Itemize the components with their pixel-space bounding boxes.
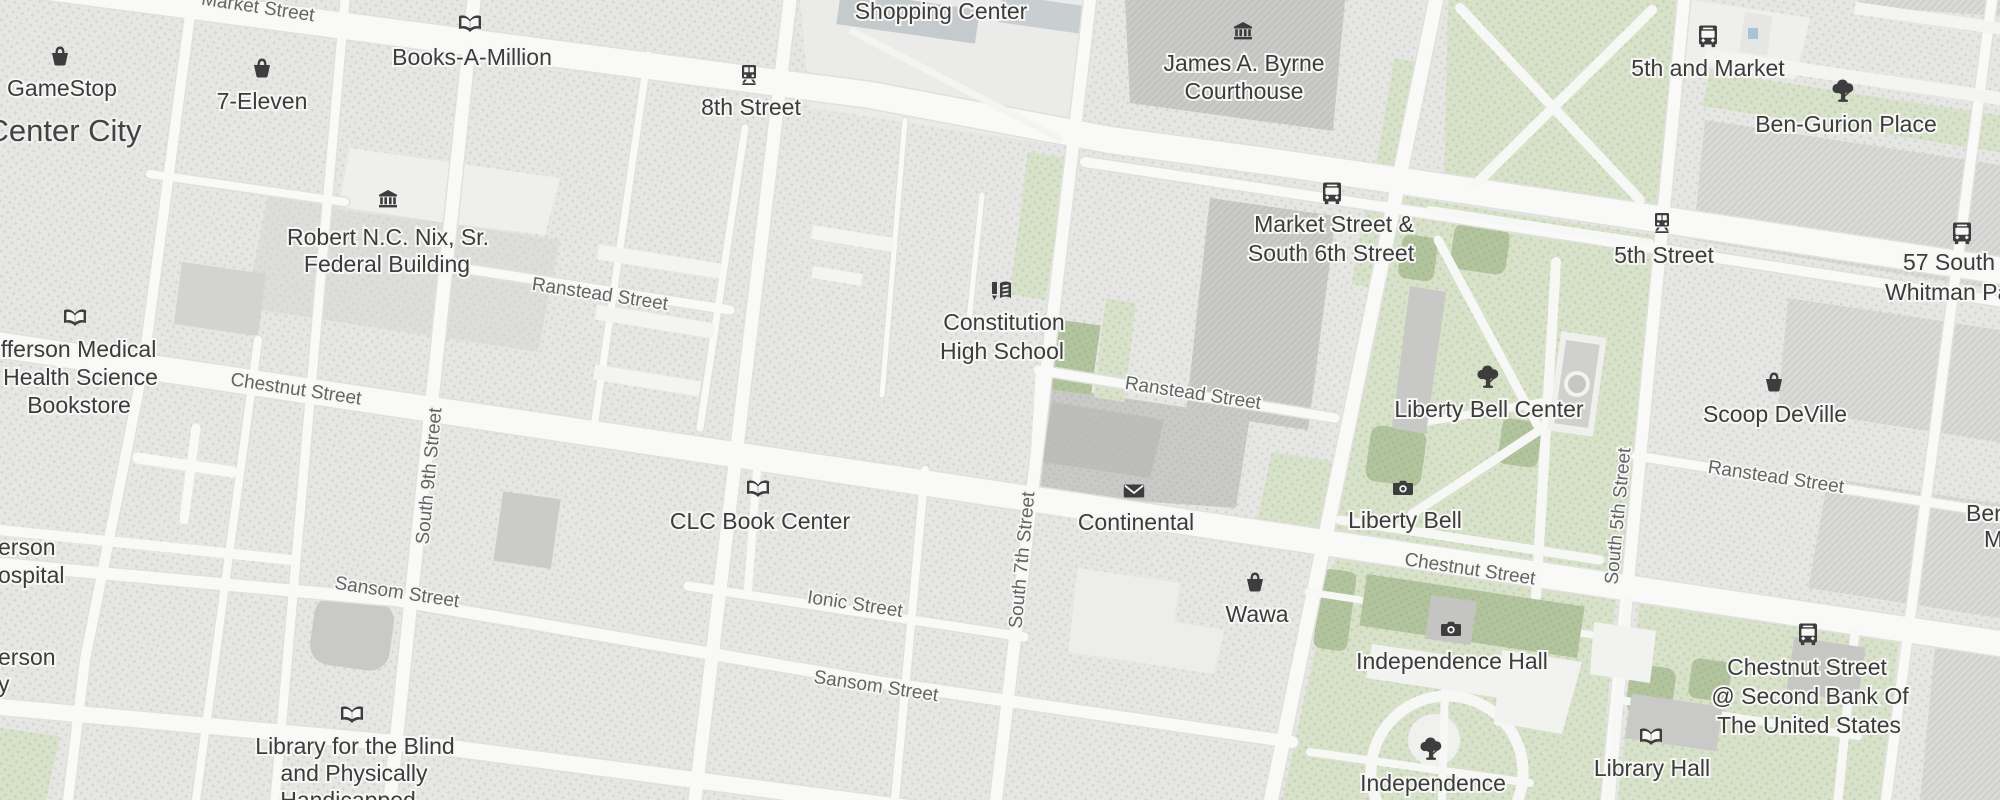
svg-text:57 South: 57 South: [1903, 249, 1995, 275]
svg-text:Ben: Ben: [1966, 500, 2000, 526]
svg-text:Continental: Continental: [1078, 509, 1194, 535]
svg-text:ospital: ospital: [0, 562, 64, 588]
svg-text:Center City: Center City: [0, 113, 142, 148]
svg-text:Courthouse: Courthouse: [1185, 78, 1304, 104]
svg-text:efferson Medical: efferson Medical: [0, 336, 156, 362]
svg-text:@ Second Bank Of: @ Second Bank Of: [1711, 683, 1909, 709]
svg-text:Books-A-Million: Books-A-Million: [392, 44, 552, 70]
svg-text:Liberty Bell: Liberty Bell: [1348, 507, 1462, 533]
svg-text:Liberty Bell Center: Liberty Bell Center: [1394, 396, 1584, 422]
svg-text:Robert N.C. Nix, Sr.: Robert N.C. Nix, Sr.: [287, 224, 489, 250]
svg-text:GameStop: GameStop: [7, 75, 117, 101]
svg-text:Handicapped: Handicapped: [280, 787, 416, 800]
svg-text:Market Street &: Market Street &: [1254, 211, 1414, 237]
svg-text:Shopping Center: Shopping Center: [855, 0, 1028, 24]
svg-text:Independence Hall: Independence Hall: [1356, 648, 1548, 674]
svg-text:8th Street: 8th Street: [701, 94, 801, 120]
svg-text:y: y: [0, 671, 10, 697]
svg-text:d Health Science: d Health Science: [0, 364, 158, 390]
svg-text:Scoop DeVille: Scoop DeVille: [1703, 401, 1847, 427]
svg-text:James A. Byrne: James A. Byrne: [1163, 50, 1324, 76]
svg-text:The United States: The United States: [1717, 712, 1901, 738]
svg-text:Constitution: Constitution: [943, 309, 1064, 335]
svg-text:M: M: [1984, 526, 2000, 552]
svg-text:Library for the Blind: Library for the Blind: [255, 733, 454, 759]
svg-text:CLC Book Center: CLC Book Center: [670, 508, 851, 534]
svg-text:High School: High School: [940, 338, 1064, 364]
svg-text:Whitman Pa: Whitman Pa: [1885, 279, 2000, 305]
svg-text:erson: erson: [0, 644, 56, 670]
svg-text:erson: erson: [0, 534, 56, 560]
svg-text:and Physically: and Physically: [280, 760, 428, 786]
svg-text:Federal Building: Federal Building: [304, 251, 470, 277]
svg-text:Independence: Independence: [1360, 770, 1506, 796]
svg-text:Ben-Gurion Place: Ben-Gurion Place: [1755, 111, 1937, 137]
svg-text:Bookstore: Bookstore: [27, 392, 131, 418]
svg-text:7-Eleven: 7-Eleven: [217, 88, 308, 114]
svg-text:Library Hall: Library Hall: [1594, 755, 1710, 781]
svg-text:Wawa: Wawa: [1225, 601, 1288, 627]
svg-text:South 6th Street: South 6th Street: [1248, 240, 1415, 266]
svg-text:5th and Market: 5th and Market: [1631, 55, 1785, 81]
svg-text:Chestnut Street: Chestnut Street: [1727, 654, 1887, 680]
svg-text:5th Street: 5th Street: [1614, 242, 1714, 268]
